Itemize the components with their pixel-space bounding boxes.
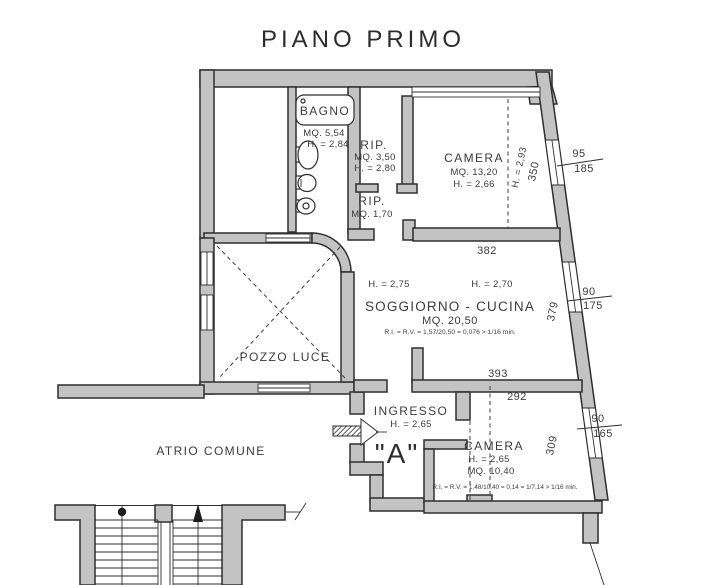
wall-soggiorno-bottom-main bbox=[412, 380, 582, 392]
stairs-wall-end-tick bbox=[295, 503, 306, 520]
wall-stairs-right bbox=[222, 505, 285, 585]
bidet-drain-icon bbox=[303, 203, 309, 209]
wall-camera2-bottom bbox=[424, 501, 602, 513]
wall-alcove-h bbox=[424, 440, 467, 449]
wall-top bbox=[200, 70, 552, 87]
wall-stairs-mid bbox=[155, 505, 172, 522]
wall-bagno-left bbox=[288, 87, 296, 232]
stairs-up-arrow bbox=[193, 504, 203, 522]
camera1-beam-span: 350 bbox=[526, 160, 542, 182]
bagno-height: H. = 2,84 bbox=[307, 139, 349, 150]
camera2-area: MQ. 10,40 bbox=[467, 466, 514, 477]
soggiorno-area: MQ. 20,50 bbox=[422, 315, 478, 327]
atrio-comune-label: ATRIO COMUNE bbox=[156, 444, 265, 458]
wall-alcove-v bbox=[424, 449, 434, 503]
soggiorno-label: SOGGIORNO - CUCINA bbox=[365, 299, 535, 314]
camera1-height: H. = 2,66 bbox=[453, 179, 495, 190]
soggiorno-height-left: H. = 2,75 bbox=[368, 279, 410, 290]
rip1-area: MQ. 3,50 bbox=[354, 152, 395, 163]
wall-soggiorno-bottom-left bbox=[354, 380, 387, 392]
soggiorno-dim-bottom: 393 bbox=[488, 368, 508, 380]
camera1-label: CAMERA bbox=[444, 151, 504, 165]
rip2-label: RIP. bbox=[358, 194, 385, 208]
camera1-beam-height: H. = 2,93 bbox=[510, 146, 529, 189]
wall-atrio-top bbox=[58, 385, 204, 398]
wall-rip-divider bbox=[356, 184, 378, 192]
wall-stairs-left bbox=[55, 505, 95, 585]
window1-dim-under: 185 bbox=[574, 163, 594, 175]
floor-plan-drawing: PIANO PRIMO BAGNO MQ. 5,54 H. = 2,84 RIP… bbox=[0, 0, 716, 585]
camera2-height: H. = 2,65 bbox=[468, 454, 510, 465]
floor-plan-page: PIANO PRIMO BAGNO MQ. 5,54 H. = 2,84 RIP… bbox=[0, 0, 716, 585]
stairs-travel-start-dot bbox=[118, 508, 126, 516]
wall-divider-stub bbox=[456, 392, 470, 420]
wall-ingresso-left-lower bbox=[350, 444, 364, 463]
bottom-right-party-line bbox=[590, 543, 604, 585]
wall-pozzo-arc bbox=[312, 233, 351, 272]
camera2-dim-top: 292 bbox=[507, 391, 527, 403]
wall-door-jamb bbox=[412, 348, 423, 382]
stairs-stringers bbox=[95, 520, 222, 585]
wall-rip-right-foot bbox=[397, 184, 417, 193]
stairs-flight1-treads bbox=[95, 520, 158, 584]
pozzo-luce-label: POZZO LUCE bbox=[240, 350, 331, 364]
camera1-area: MQ. 13,20 bbox=[450, 167, 497, 178]
soggiorno-ratio: R.I. = R.V. = 1,57/20,50 = 0,076 > 1/16 … bbox=[384, 329, 515, 336]
camera2-label: CAMERA bbox=[464, 439, 524, 453]
soggiorno-dim-top: 382 bbox=[477, 245, 497, 257]
wall-pozzo-right bbox=[341, 272, 354, 382]
soggiorno-height-right: H. = 2,70 bbox=[471, 279, 513, 290]
rip1-label: RIP. bbox=[360, 138, 387, 152]
wall-soggiorno-top bbox=[413, 228, 560, 241]
camera2-dim-right: 309 bbox=[544, 434, 560, 456]
window3-dim-under: 165 bbox=[593, 428, 613, 440]
wall-corner-bottom-right bbox=[583, 513, 598, 543]
bagno-label: BAGNO bbox=[300, 104, 350, 118]
wall-ingresso-left-upper bbox=[350, 392, 364, 414]
unit-a-label: "A" bbox=[375, 438, 420, 469]
window1-dim-over: 95 bbox=[572, 148, 585, 160]
wall-rip-right bbox=[402, 96, 413, 185]
window3-dim-over: 90 bbox=[591, 413, 604, 425]
rip1-height: H. = 2,80 bbox=[354, 163, 396, 174]
bagno-area: MQ. 5,54 bbox=[303, 128, 344, 139]
wall-bagno-bottom-stub bbox=[348, 229, 374, 240]
stairs-flight2-treads bbox=[173, 520, 222, 584]
ingresso-label: INGRESSO bbox=[374, 404, 449, 418]
wall-ingresso-corner-h bbox=[370, 498, 428, 511]
window2-dim-under: 175 bbox=[583, 300, 603, 312]
camera2-ratio: R.I. = R.V. = 1,48/10,40 = 0,14 = 1/7,14… bbox=[433, 484, 578, 491]
page-title: PIANO PRIMO bbox=[261, 26, 465, 53]
entrance-arrow-shaft bbox=[333, 426, 361, 436]
rip2-area: MQ. 1,70 bbox=[351, 209, 392, 220]
ingresso-height: H. = 2,65 bbox=[390, 419, 432, 430]
wall-left-upper bbox=[200, 70, 214, 238]
bathtub-faucet-icon bbox=[301, 99, 305, 103]
window2-dim-over: 90 bbox=[582, 286, 595, 298]
soggiorno-dim-right: 379 bbox=[545, 300, 561, 322]
